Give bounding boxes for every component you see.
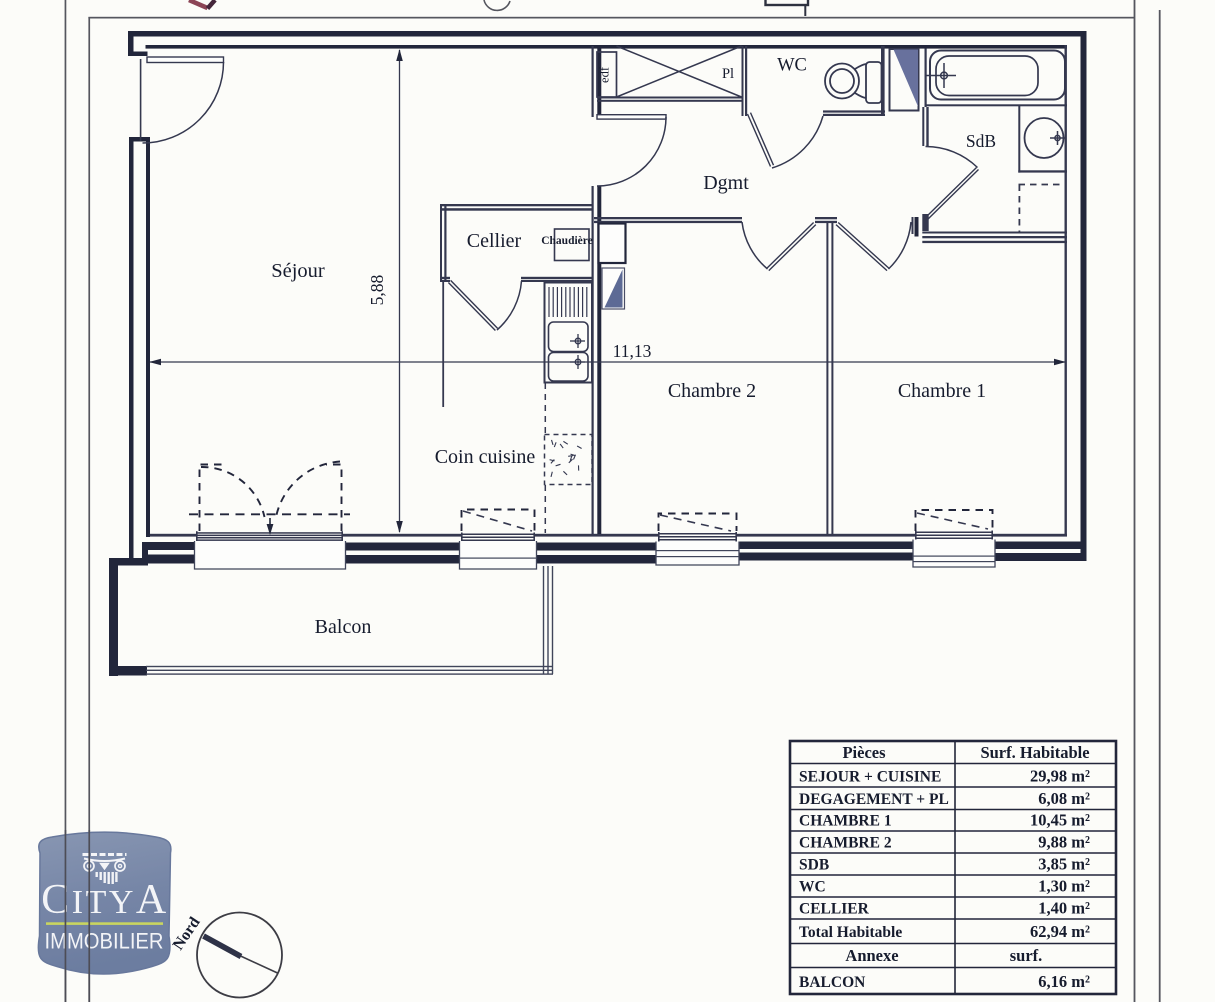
svg-text:29,98 m²: 29,98 m² [1030, 767, 1090, 786]
svg-text:DEGAGEMENT + PL: DEGAGEMENT + PL [799, 791, 949, 808]
svg-text:Pièces: Pièces [842, 743, 886, 762]
svg-text:10,45 m²: 10,45 m² [1030, 811, 1090, 830]
svg-text:CELLIER: CELLIER [799, 901, 870, 918]
svg-text:5,88: 5,88 [367, 274, 387, 305]
svg-text:CHAMBRE 1: CHAMBRE 1 [799, 813, 892, 830]
svg-text:BALCON: BALCON [799, 974, 865, 991]
svg-text:Chaudière: Chaudière [541, 235, 593, 247]
svg-text:1,30 m²: 1,30 m² [1038, 877, 1090, 896]
svg-text:Chambre 1: Chambre 1 [898, 380, 986, 402]
svg-text:CHAMBRE 2: CHAMBRE 2 [799, 835, 892, 852]
svg-text:SdB: SdB [966, 131, 996, 151]
svg-text:Total Habitable: Total Habitable [799, 924, 902, 941]
svg-text:6,16 m²: 6,16 m² [1038, 972, 1090, 991]
svg-text:Pl: Pl [722, 66, 734, 82]
svg-text:3,85 m²: 3,85 m² [1038, 855, 1090, 874]
svg-text:Annexe: Annexe [845, 946, 898, 965]
svg-text:62,94 m²: 62,94 m² [1030, 922, 1090, 941]
svg-text:Dgmt: Dgmt [703, 172, 749, 194]
svg-text:WC: WC [799, 879, 826, 896]
svg-text:9,88 m²: 9,88 m² [1038, 833, 1090, 852]
svg-text:edf: edf [598, 66, 612, 83]
svg-text:SDB: SDB [799, 857, 829, 874]
svg-text:1,40 m²: 1,40 m² [1038, 899, 1090, 918]
svg-text:WC: WC [777, 56, 807, 76]
svg-text:11,13: 11,13 [613, 341, 652, 361]
svg-text:Chambre 2: Chambre 2 [668, 380, 756, 402]
svg-text:CITYA: CITYA [41, 877, 169, 923]
svg-text:Coin cuisine: Coin cuisine [435, 446, 536, 468]
svg-text:6,08 m²: 6,08 m² [1038, 789, 1090, 808]
svg-text:Cellier: Cellier [467, 230, 522, 252]
svg-text:IMMOBILIER: IMMOBILIER [45, 929, 164, 954]
svg-text:Balcon: Balcon [315, 616, 372, 638]
svg-text:Surf. Habitable: Surf. Habitable [980, 743, 1089, 762]
svg-text:surf.: surf. [1010, 946, 1043, 965]
svg-text:Séjour: Séjour [271, 260, 325, 282]
svg-text:Nord: Nord [170, 914, 204, 953]
svg-text:SEJOUR + CUISINE: SEJOUR + CUISINE [799, 769, 941, 786]
